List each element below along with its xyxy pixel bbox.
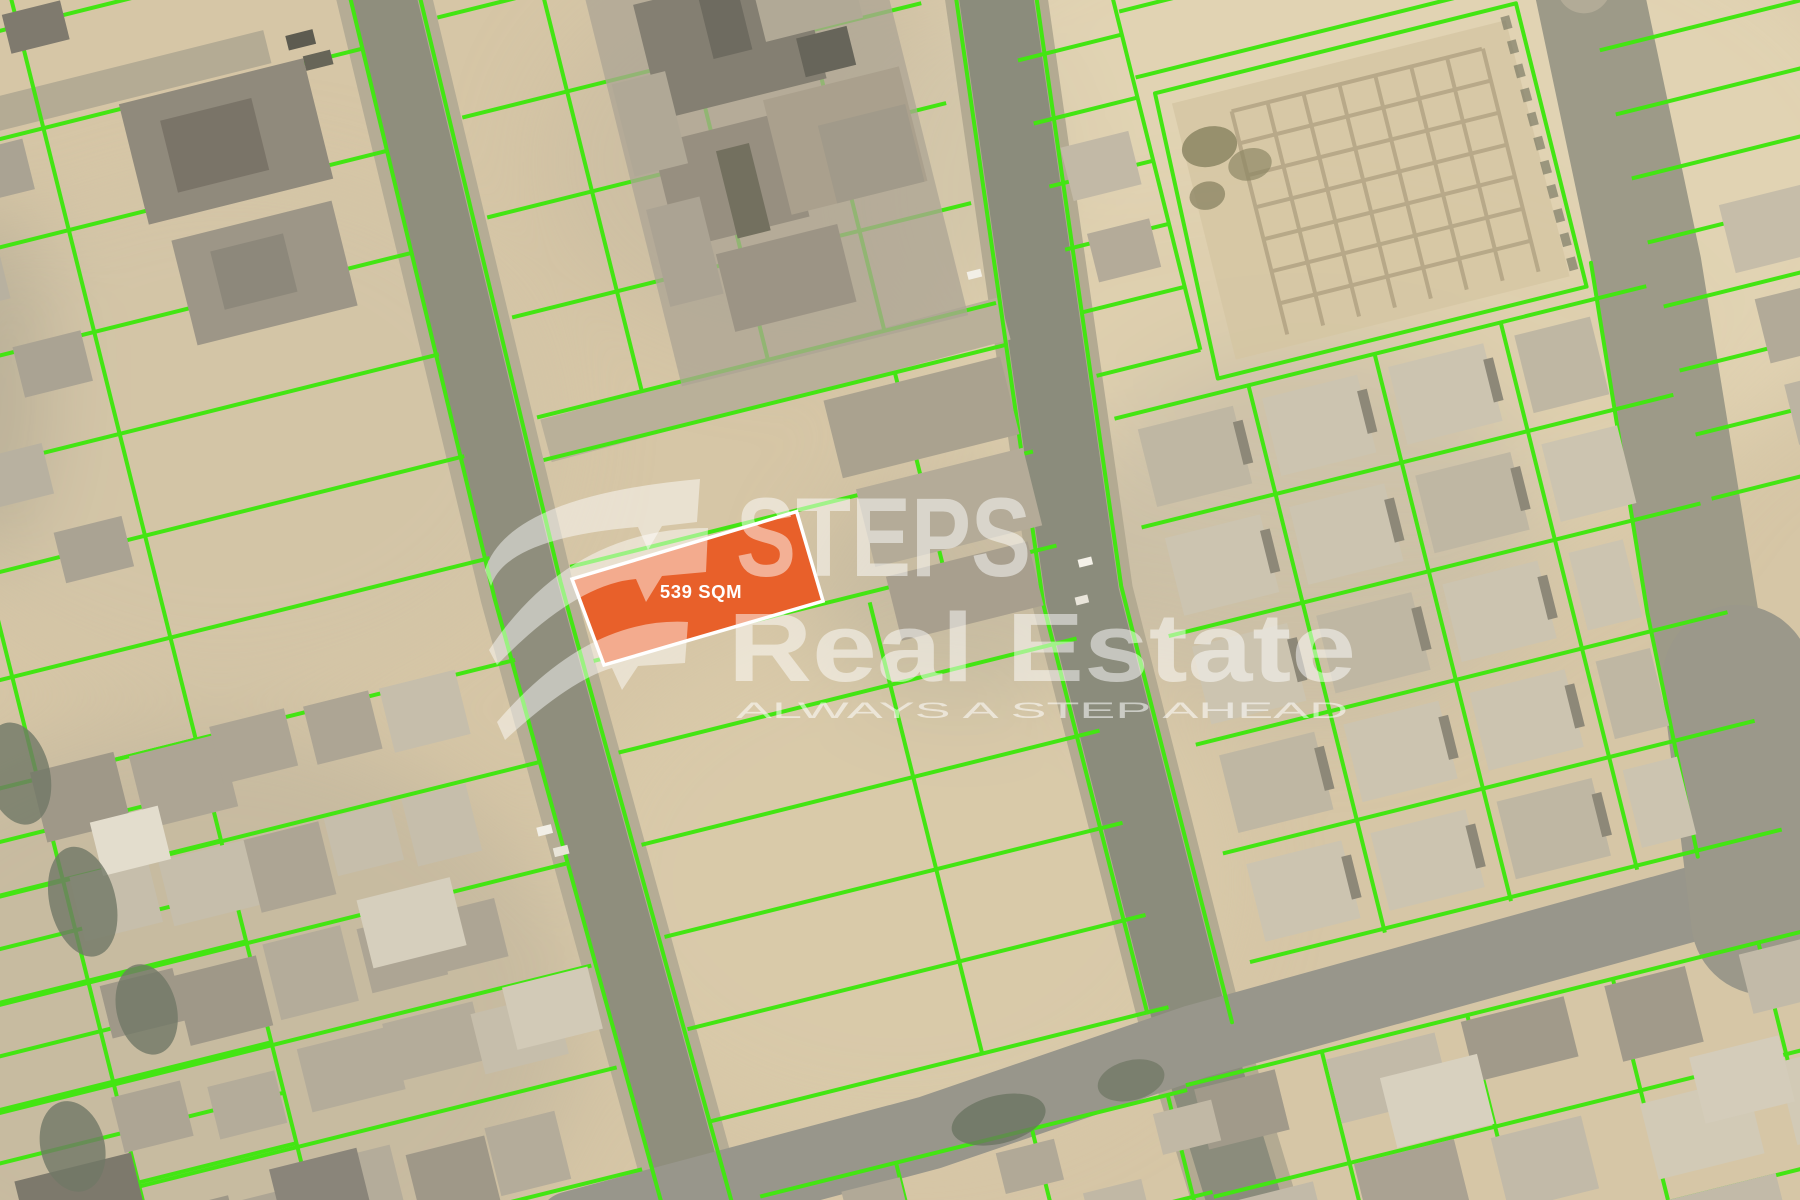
svg-text:Real Estate: Real Estate bbox=[728, 593, 1356, 702]
svg-text:539 SQM: 539 SQM bbox=[660, 581, 742, 602]
svg-text:ALWAYS A STEP AHEAD: ALWAYS A STEP AHEAD bbox=[736, 698, 1348, 723]
svg-text:STEPS: STEPS bbox=[736, 475, 1031, 600]
